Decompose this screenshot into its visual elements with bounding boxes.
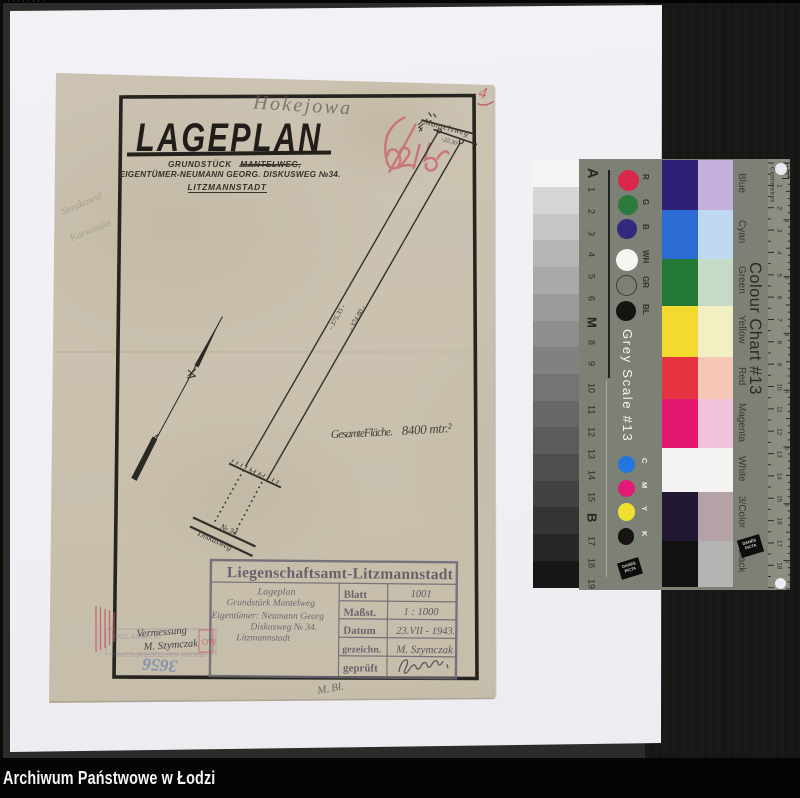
svg-text:Datum: Datum [343, 625, 376, 637]
svg-text:- 375.35 -: - 375.35 - [327, 303, 348, 331]
svg-text:Serakowsl: Serakowsl [60, 190, 104, 218]
svg-text:4: 4 [477, 84, 488, 102]
svg-text:Liegenschaftsamt-Litzmannstadt: Liegenschaftsamt-Litzmannstadt [227, 564, 454, 583]
svg-text:OW: OW [202, 638, 216, 647]
svg-text:1001: 1001 [411, 589, 432, 600]
svg-text:Blatt: Blatt [344, 589, 368, 601]
svg-text:gezeichn.: gezeichn. [342, 644, 382, 655]
svg-text:Vermessung: Vermessung [136, 625, 187, 639]
svg-text:Diskusweg № 34.: Diskusweg № 34. [249, 622, 317, 633]
svg-text:geprüft: geprüft [343, 662, 378, 674]
svg-text:GesamteFläche.: GesamteFläche. [331, 426, 393, 441]
svg-text:Litzmannstadt: Litzmannstadt [235, 633, 290, 644]
svg-text:Grundstürk Mantelweg: Grundstürk Mantelweg [227, 598, 316, 609]
svg-text:Karwinska: Karwinska [68, 218, 113, 245]
svg-text:M. Bł.: M. Bł. [315, 681, 344, 698]
svg-text:-33.15-: -33.15- [245, 468, 265, 482]
svg-text:-22.30-: -22.30- [441, 137, 459, 148]
svg-text:8400 mtr.²: 8400 mtr.² [401, 420, 453, 438]
svg-text:Maßst.: Maßst. [343, 607, 376, 619]
svg-text:M. Szymczak: M. Szymczak [395, 644, 454, 657]
svg-text:23.VII - 1943.: 23.VII - 1943. [396, 626, 455, 638]
svg-text:3656: 3656 [141, 654, 179, 676]
svg-text:- 374.80 -: - 374.80 - [347, 304, 368, 332]
svg-text:1 : 1000: 1 : 1000 [403, 607, 439, 618]
svg-text:Lageplan: Lageplan [257, 586, 296, 597]
svg-text:Eigentümer: Neumann Georg: Eigentümer: Neumann Georg [210, 611, 324, 622]
